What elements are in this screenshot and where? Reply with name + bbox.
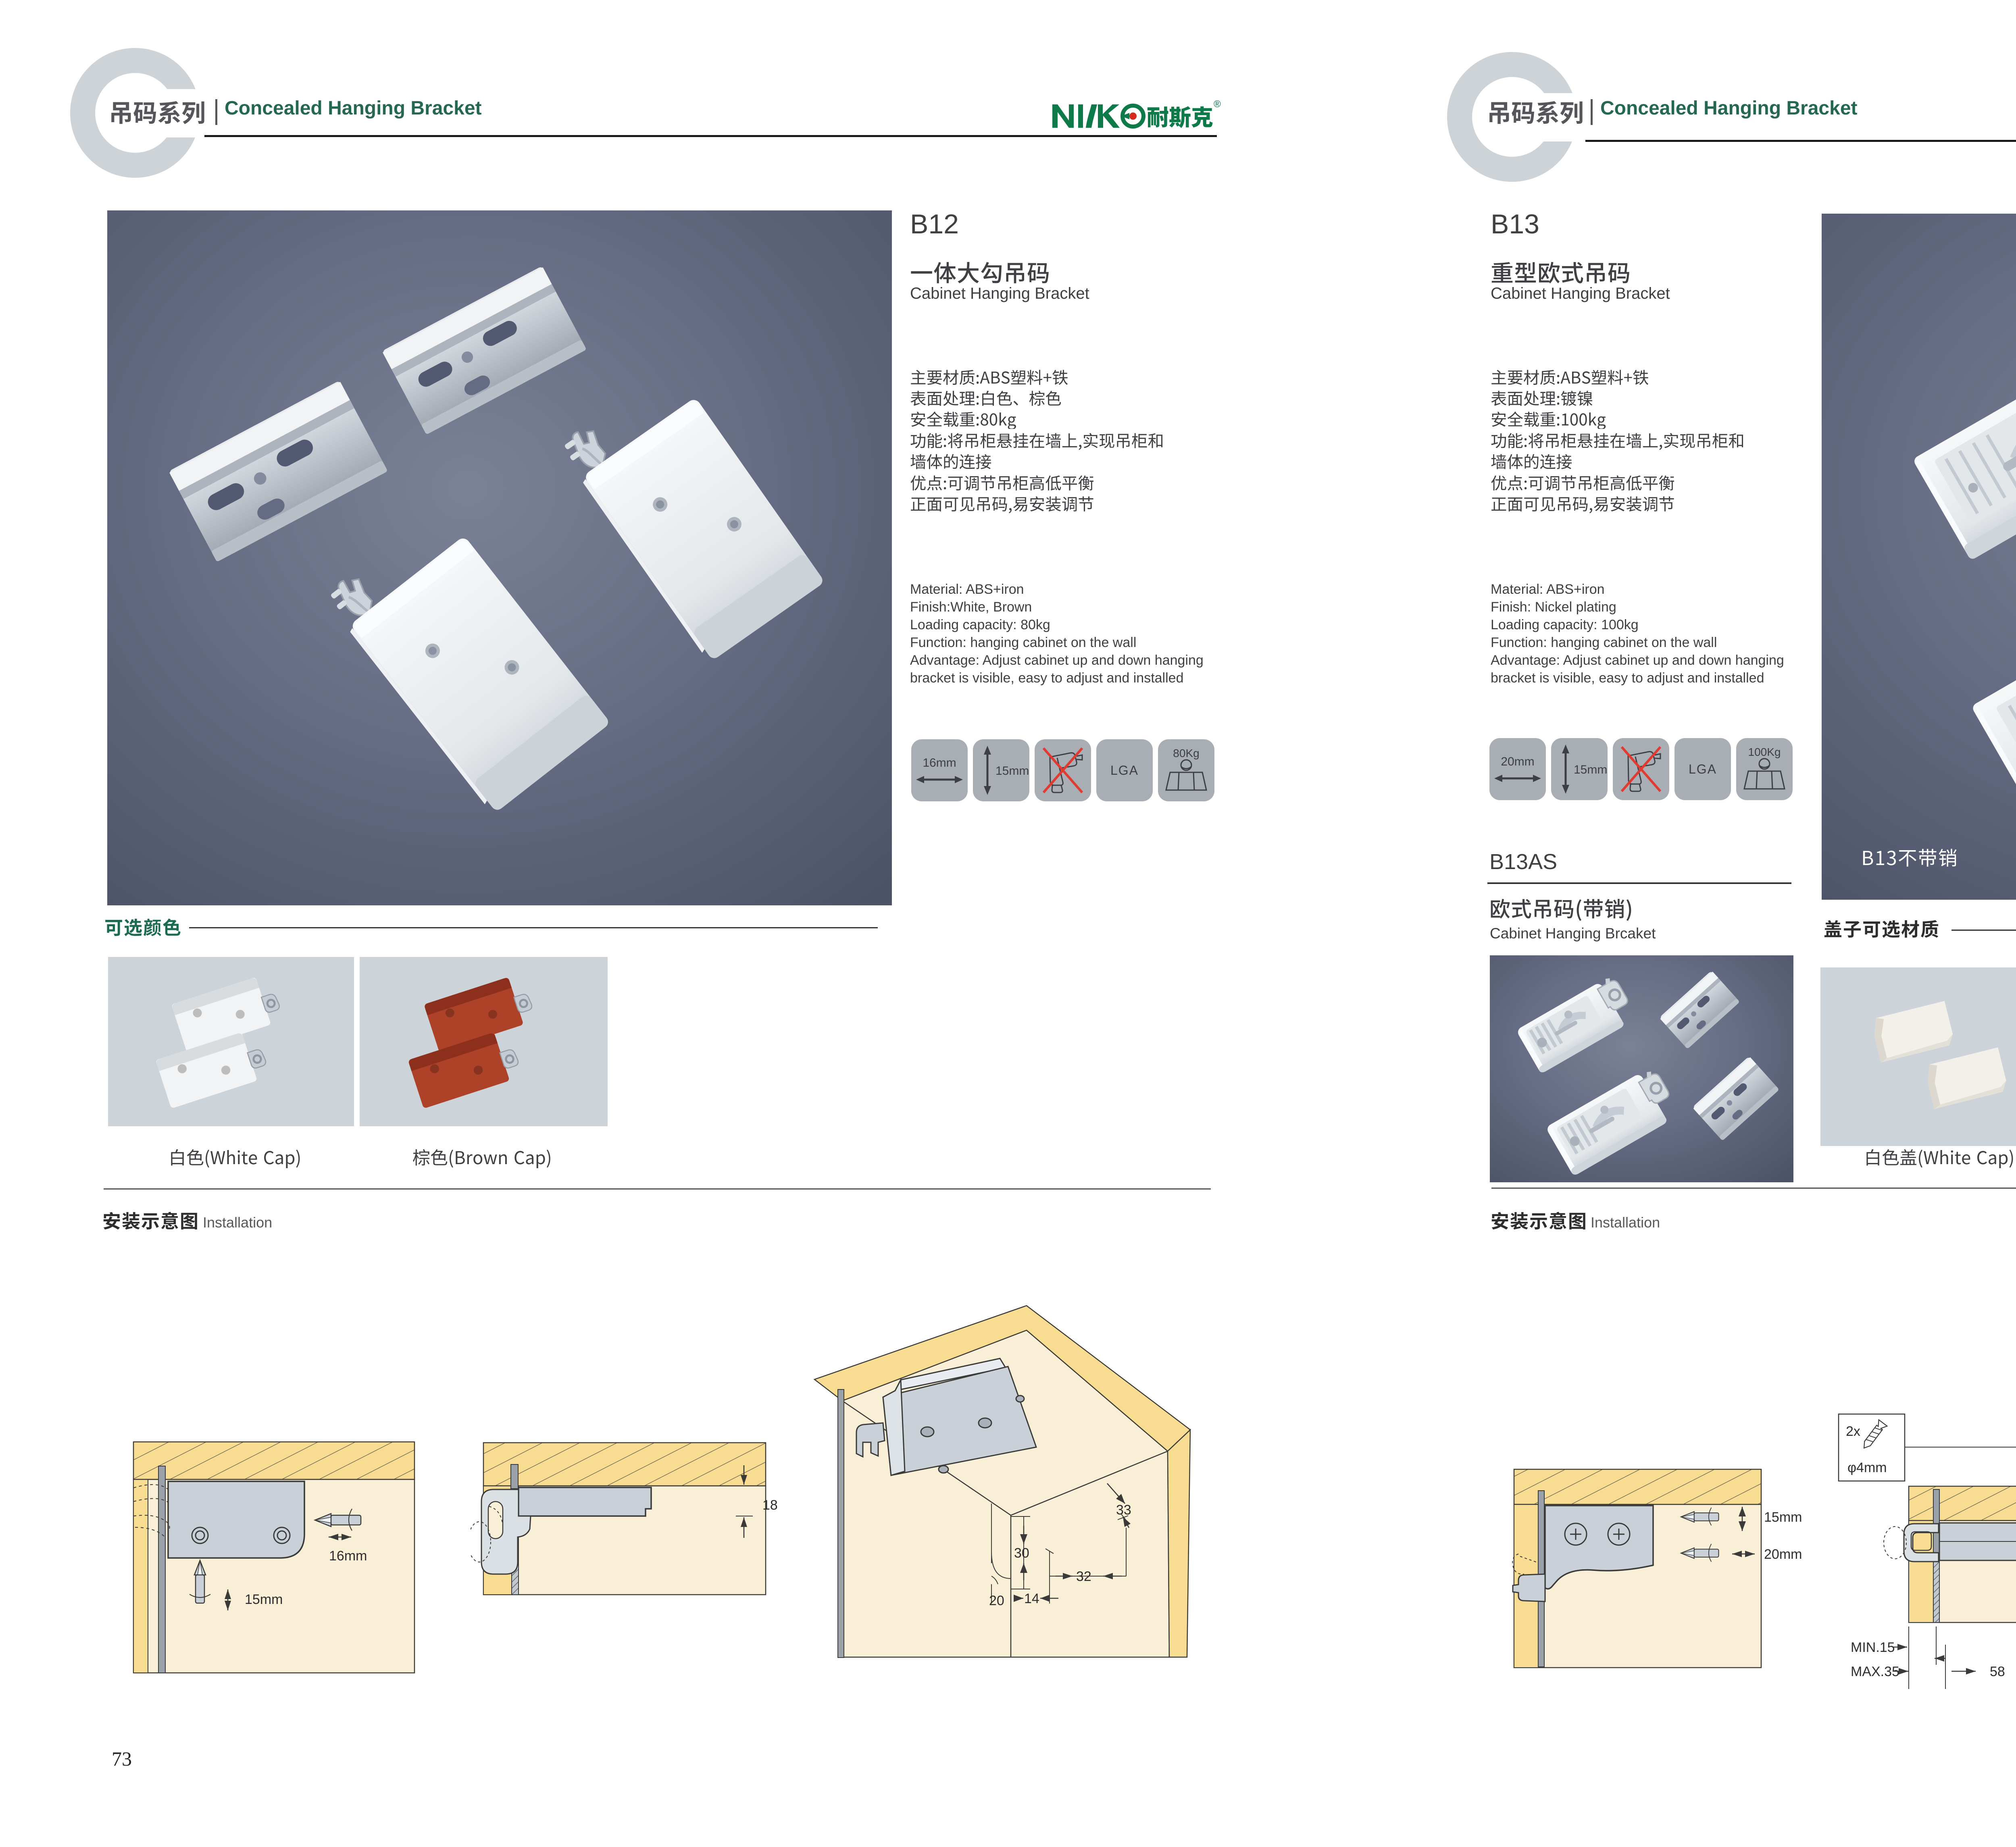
svg-text:100Kg: 100Kg bbox=[1748, 746, 1781, 758]
svg-text:LGA: LGA bbox=[1689, 762, 1717, 776]
svg-text:20mm: 20mm bbox=[1764, 1547, 1802, 1562]
svg-text:15mm: 15mm bbox=[245, 1592, 283, 1607]
svg-text:16mm: 16mm bbox=[329, 1548, 367, 1564]
svg-text:32: 32 bbox=[1076, 1569, 1091, 1584]
svg-text:15mm: 15mm bbox=[1764, 1510, 1802, 1525]
svg-text:2x: 2x bbox=[1846, 1424, 1860, 1439]
svg-text:58: 58 bbox=[1990, 1664, 2005, 1679]
svg-text:φ4mm: φ4mm bbox=[1847, 1460, 1887, 1475]
svg-text:MIN.15: MIN.15 bbox=[1851, 1640, 1895, 1655]
svg-text:15mm: 15mm bbox=[1574, 763, 1607, 776]
svg-text:20mm: 20mm bbox=[1501, 755, 1534, 768]
svg-text:20: 20 bbox=[989, 1593, 1004, 1608]
svg-text:80Kg: 80Kg bbox=[1173, 747, 1199, 759]
svg-text:MAX.35: MAX.35 bbox=[1851, 1664, 1899, 1679]
svg-text:33: 33 bbox=[1116, 1502, 1131, 1518]
svg-text:16mm: 16mm bbox=[923, 756, 956, 770]
svg-text:30: 30 bbox=[1014, 1545, 1029, 1561]
svg-text:14: 14 bbox=[1024, 1591, 1039, 1606]
svg-text:15mm: 15mm bbox=[996, 764, 1029, 778]
svg-text:LGA: LGA bbox=[1110, 763, 1139, 778]
svg-text:18: 18 bbox=[762, 1498, 778, 1513]
